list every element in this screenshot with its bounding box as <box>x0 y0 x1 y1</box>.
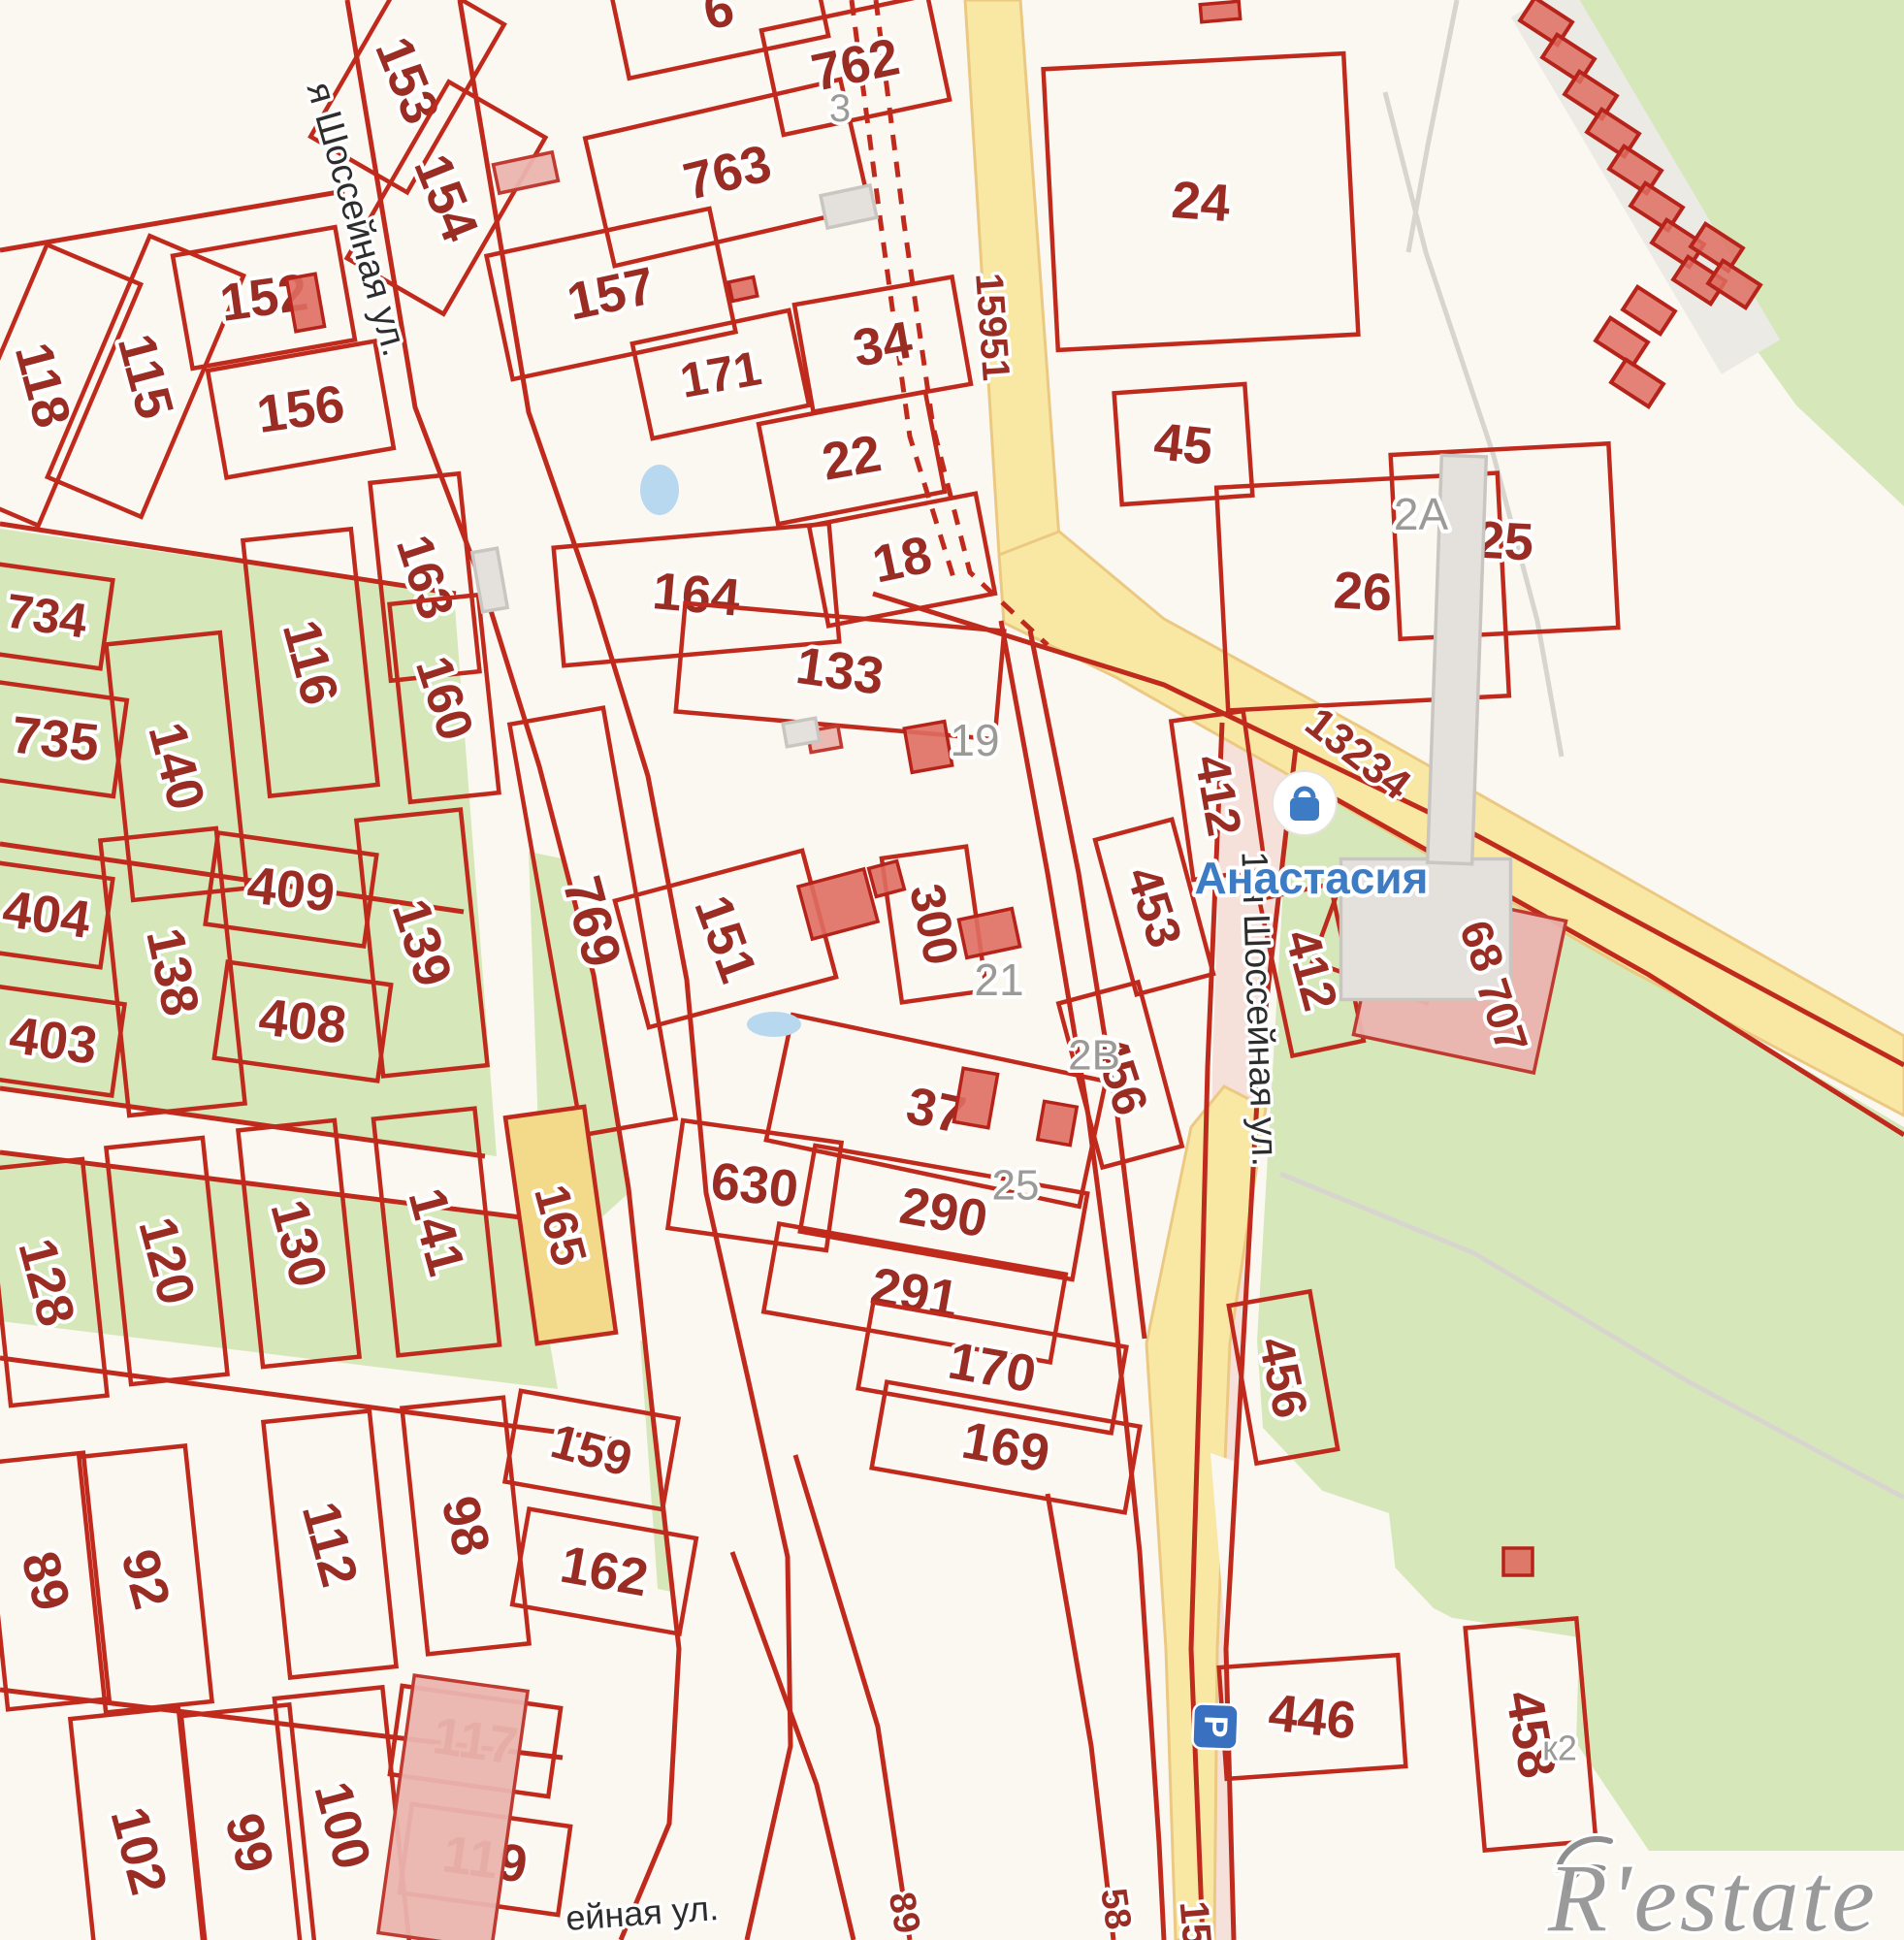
pond <box>747 1012 801 1037</box>
building-red <box>904 722 952 773</box>
building-red <box>1200 1 1240 21</box>
shopping-bag-icon <box>1290 797 1319 821</box>
parcel-number-label: 24 <box>1170 171 1232 233</box>
road-number-label: 89 <box>881 1890 928 1937</box>
building-red <box>1038 1101 1077 1145</box>
parcel-number-label: 34 <box>849 310 917 378</box>
road-number-label: 58 <box>1092 1886 1138 1932</box>
building-red <box>728 277 758 302</box>
parcel-number-label: 734 <box>3 583 91 648</box>
parcel-number-label: 26 <box>1332 561 1393 622</box>
building-gray <box>783 718 820 747</box>
parcel-number-label: 630 <box>708 1151 801 1218</box>
cadastral-map[interactable]: 1181151521561531541571717637626342218164… <box>0 0 1904 1940</box>
parcel-number-label: 735 <box>9 705 102 772</box>
address-label: к2 <box>1542 1729 1577 1768</box>
watermark: R'estate <box>1547 1844 1878 1940</box>
parking-icon[interactable]: Р <box>1192 1703 1239 1750</box>
parcel-number-label: 403 <box>6 1006 101 1076</box>
parcel-number-label: 446 <box>1266 1683 1359 1750</box>
road-number-label: 15951 <box>967 272 1017 382</box>
building-red <box>1503 1548 1533 1575</box>
parcel-number-label: 404 <box>0 880 94 950</box>
parcel-number-label: 22 <box>818 424 886 492</box>
address-label: 21 <box>974 954 1023 1005</box>
parcel-number-label: 408 <box>256 987 349 1054</box>
building-red <box>953 1068 997 1127</box>
address-label: 19 <box>950 715 999 765</box>
address-label: 2A <box>1394 489 1449 539</box>
pond <box>640 465 679 515</box>
parcel-number-label: 18 <box>867 525 936 594</box>
parcel-number-label: 45 <box>1151 412 1215 476</box>
address-label: 2В <box>1068 1032 1120 1080</box>
map-canvas[interactable]: 1181151521561531541571717637626342218164… <box>0 0 1904 1940</box>
parcel-number-label: 409 <box>244 856 338 922</box>
parcel-number-label: 133 <box>792 636 887 706</box>
road-number-label: 15 <box>1172 1899 1221 1940</box>
address-label: 25 <box>992 1162 1040 1210</box>
parcel-number-label: 156 <box>253 374 348 444</box>
address-label: 3 <box>829 87 851 130</box>
parking-glyph: Р <box>1197 1715 1235 1738</box>
parcel-number-label: 164 <box>651 562 743 628</box>
poi-name-label[interactable]: Анастасия <box>1195 853 1429 903</box>
building-red <box>869 861 905 897</box>
